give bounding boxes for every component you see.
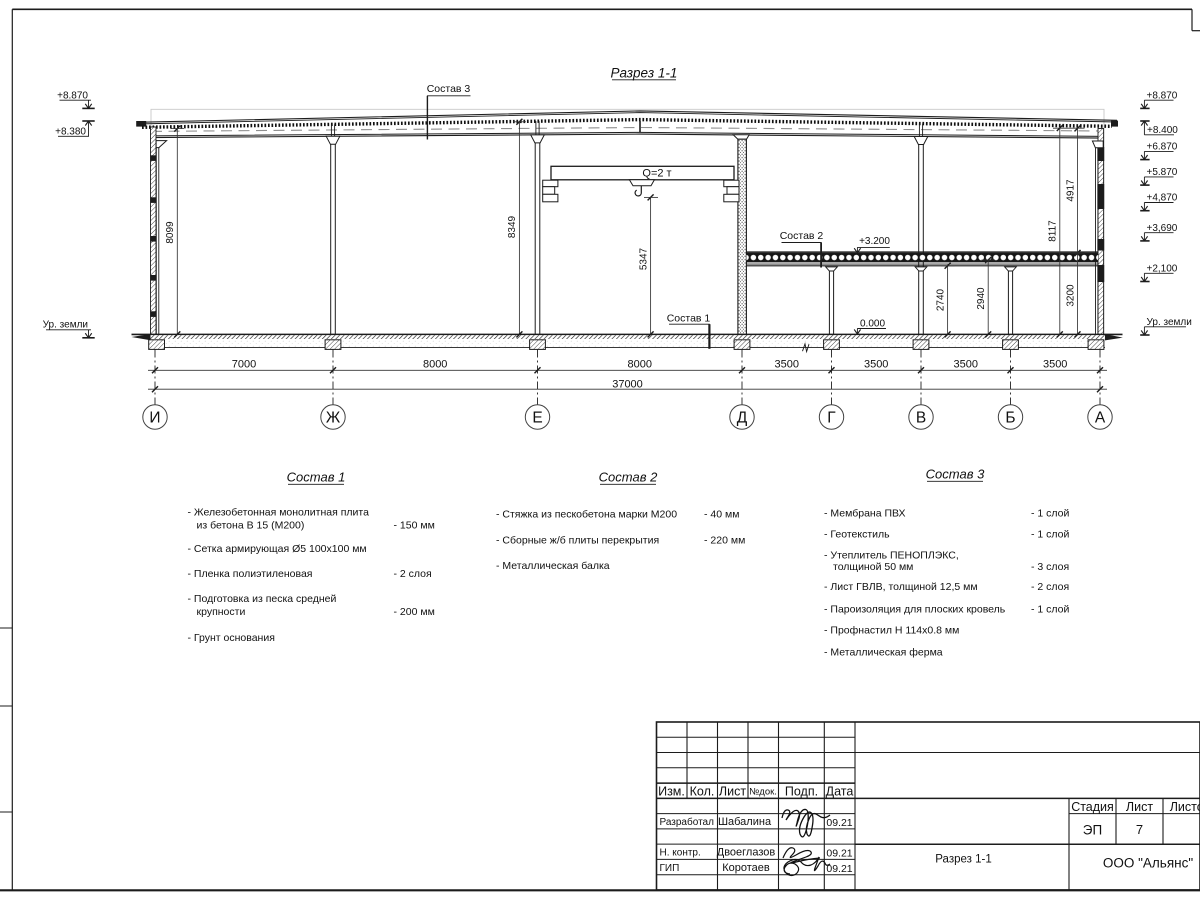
svg-text:- 220 мм: - 220 мм xyxy=(704,535,745,547)
svg-text:- Мембрана ПВХ: - Мембрана ПВХ xyxy=(824,508,906,520)
svg-text:из бетона В 15 (М200): из бетона В 15 (М200) xyxy=(197,520,305,532)
svg-text:№док.: №док. xyxy=(749,787,777,798)
svg-text:В: В xyxy=(916,410,926,427)
svg-text:Д: Д xyxy=(737,410,748,427)
svg-text:3200: 3200 xyxy=(1065,284,1076,307)
svg-text:8349: 8349 xyxy=(507,215,518,238)
svg-text:+6.870: +6.870 xyxy=(1147,142,1178,153)
svg-text:+5.870: +5.870 xyxy=(1147,167,1178,178)
svg-text:Шабалина: Шабалина xyxy=(718,816,772,828)
svg-text:Двоеглазов: Двоеглазов xyxy=(717,847,776,859)
svg-text:- 150 мм: - 150 мм xyxy=(394,520,435,532)
svg-text:- 1 слой: - 1 слой xyxy=(1031,604,1070,616)
svg-text:Состав 3: Состав 3 xyxy=(427,83,471,95)
svg-text:- Лист ГВЛВ, толщиной 12,5 мм: - Лист ГВЛВ, толщиной 12,5 мм xyxy=(824,581,978,593)
svg-text:И: И xyxy=(149,410,160,427)
svg-text:Кол.: Кол. xyxy=(690,784,715,798)
svg-text:Изм.: Изм. xyxy=(658,784,685,798)
svg-text:8000: 8000 xyxy=(423,359,447,371)
svg-text:3500: 3500 xyxy=(864,359,888,371)
svg-text:+3.200: +3.200 xyxy=(859,236,890,247)
svg-text:Состав 2: Состав 2 xyxy=(599,470,658,485)
svg-text:- Подготовка из песка средней: - Подготовка из песка средней xyxy=(188,593,337,605)
svg-text:0.000: 0.000 xyxy=(860,319,885,330)
svg-text:- 1 слой: - 1 слой xyxy=(1031,508,1070,520)
svg-text:Ур. земли: Ур. земли xyxy=(1147,317,1192,328)
svg-text:Разработал: Разработал xyxy=(660,816,715,828)
svg-text:- Грунт основания: - Грунт основания xyxy=(188,632,275,644)
svg-text:- 40 мм: - 40 мм xyxy=(704,509,739,521)
svg-text:7: 7 xyxy=(1136,822,1143,837)
svg-text:- Утеплитель ПЕНОПЛЭКС,: - Утеплитель ПЕНОПЛЭКС, xyxy=(824,550,959,562)
svg-text:- 200 мм: - 200 мм xyxy=(394,606,435,618)
svg-text:- Металлическая балка: - Металлическая балка xyxy=(496,560,610,572)
svg-text:- 3 слоя: - 3 слоя xyxy=(1031,561,1069,573)
svg-text:- Металлическая ферма: - Металлическая ферма xyxy=(824,647,943,659)
svg-text:- Сборные ж/б плиты перекрытия: - Сборные ж/б плиты перекрытия xyxy=(496,535,659,547)
svg-text:- Профнастил Н 114х0.8 мм: - Профнастил Н 114х0.8 мм xyxy=(824,625,959,637)
svg-text:7000: 7000 xyxy=(232,359,256,371)
svg-text:8117: 8117 xyxy=(1048,220,1059,242)
svg-text:Ж: Ж xyxy=(326,410,341,427)
svg-text:+4,870: +4,870 xyxy=(1147,193,1178,204)
svg-text:4917: 4917 xyxy=(1065,179,1076,202)
svg-text:- Стяжка из пескобетона марки: - Стяжка из пескобетона марки М200 xyxy=(496,509,677,521)
svg-text:толщиной 50 мм: толщиной 50 мм xyxy=(833,561,913,573)
svg-text:8099: 8099 xyxy=(165,221,176,244)
svg-text:ООО "Альянс": ООО "Альянс" xyxy=(1103,855,1193,870)
svg-text:Разрез 1-1: Разрез 1-1 xyxy=(935,854,991,866)
svg-text:3500: 3500 xyxy=(954,359,978,371)
svg-text:37000: 37000 xyxy=(612,378,643,390)
svg-text:Лист: Лист xyxy=(719,784,746,798)
svg-text:+8.870: +8.870 xyxy=(57,90,88,101)
svg-text:Н. контр.: Н. контр. xyxy=(660,848,701,859)
svg-text:3500: 3500 xyxy=(775,359,799,371)
svg-text:09.21: 09.21 xyxy=(826,863,852,875)
svg-text:Состав 2: Состав 2 xyxy=(780,230,824,242)
svg-text:Лист: Лист xyxy=(1126,800,1153,814)
svg-text:А: А xyxy=(1095,410,1106,427)
svg-text:Ур. земли: Ур. земли xyxy=(43,320,88,331)
svg-text:Б: Б xyxy=(1005,410,1015,427)
svg-text:+2,100: +2,100 xyxy=(1147,264,1178,275)
svg-text:+8.870: +8.870 xyxy=(1147,90,1178,101)
svg-text:- Геотекстиль: - Геотекстиль xyxy=(824,529,890,541)
svg-text:2940: 2940 xyxy=(976,287,987,310)
svg-text:Листов: Листов xyxy=(1170,800,1200,814)
svg-text:Разрез 1-1: Разрез 1-1 xyxy=(611,66,678,81)
svg-text:Состав 1: Состав 1 xyxy=(287,470,346,485)
svg-text:- 2 слоя: - 2 слоя xyxy=(394,568,432,580)
svg-text:Е: Е xyxy=(532,410,542,427)
svg-text:+8.400: +8.400 xyxy=(1147,125,1178,136)
svg-text:- Пароизоляция для плоских кро: - Пароизоляция для плоских кровель xyxy=(824,604,1006,616)
svg-text:крупности: крупности xyxy=(197,606,246,618)
svg-text:+8.380: +8.380 xyxy=(55,127,86,138)
svg-text:Состав 1: Состав 1 xyxy=(667,312,711,324)
svg-text:2740: 2740 xyxy=(935,288,946,311)
svg-text:- Пленка полиэтиленовая: - Пленка полиэтиленовая xyxy=(188,568,313,580)
svg-text:09.21: 09.21 xyxy=(826,817,852,829)
svg-text:Состав 3: Состав 3 xyxy=(926,467,985,482)
svg-text:ГИП: ГИП xyxy=(660,863,680,874)
svg-text:Q=2 т: Q=2 т xyxy=(642,168,671,180)
svg-text:+3,690: +3,690 xyxy=(1147,223,1178,234)
svg-text:Коротаев: Коротаев xyxy=(722,862,770,874)
svg-text:Г: Г xyxy=(827,410,836,427)
svg-text:Стадия: Стадия xyxy=(1071,800,1114,814)
svg-text:09.21: 09.21 xyxy=(826,848,852,860)
svg-text:5347: 5347 xyxy=(638,247,649,270)
svg-text:- 2 слоя: - 2 слоя xyxy=(1031,581,1069,593)
svg-text:- Сетка армирующая Ø5 100х100: - Сетка армирующая Ø5 100х100 мм xyxy=(188,543,367,555)
svg-text:ЭП: ЭП xyxy=(1083,823,1102,838)
svg-text:Дата: Дата xyxy=(826,784,854,798)
svg-text:- 1 слой: - 1 слой xyxy=(1031,529,1070,541)
svg-text:- Железобетонная монолитная п: - Железобетонная монолитная плита xyxy=(188,507,370,519)
svg-text:8000: 8000 xyxy=(628,359,652,371)
svg-text:3500: 3500 xyxy=(1043,359,1067,371)
svg-text:Подп.: Подп. xyxy=(785,784,818,798)
